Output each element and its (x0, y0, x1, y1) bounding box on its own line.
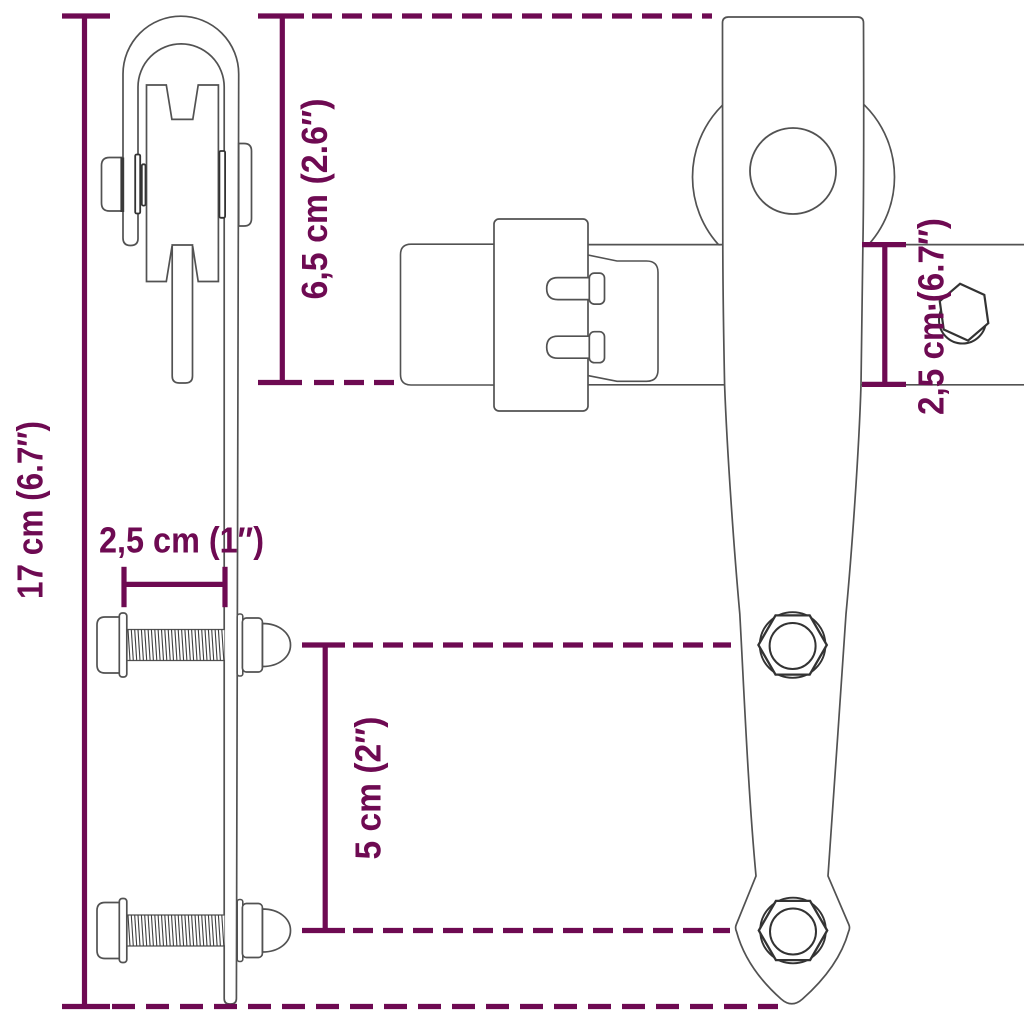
svg-text:6,5 cm (2.6″): 6,5 cm (2.6″) (294, 99, 335, 300)
svg-text:2,5 cm (6.7″): 2,5 cm (6.7″) (911, 218, 952, 415)
svg-text:2,5 cm (1″): 2,5 cm (1″) (99, 520, 264, 561)
svg-text:17 cm (6.7″): 17 cm (6.7″) (10, 421, 51, 599)
svg-text:5 cm (2″): 5 cm (2″) (348, 717, 389, 860)
